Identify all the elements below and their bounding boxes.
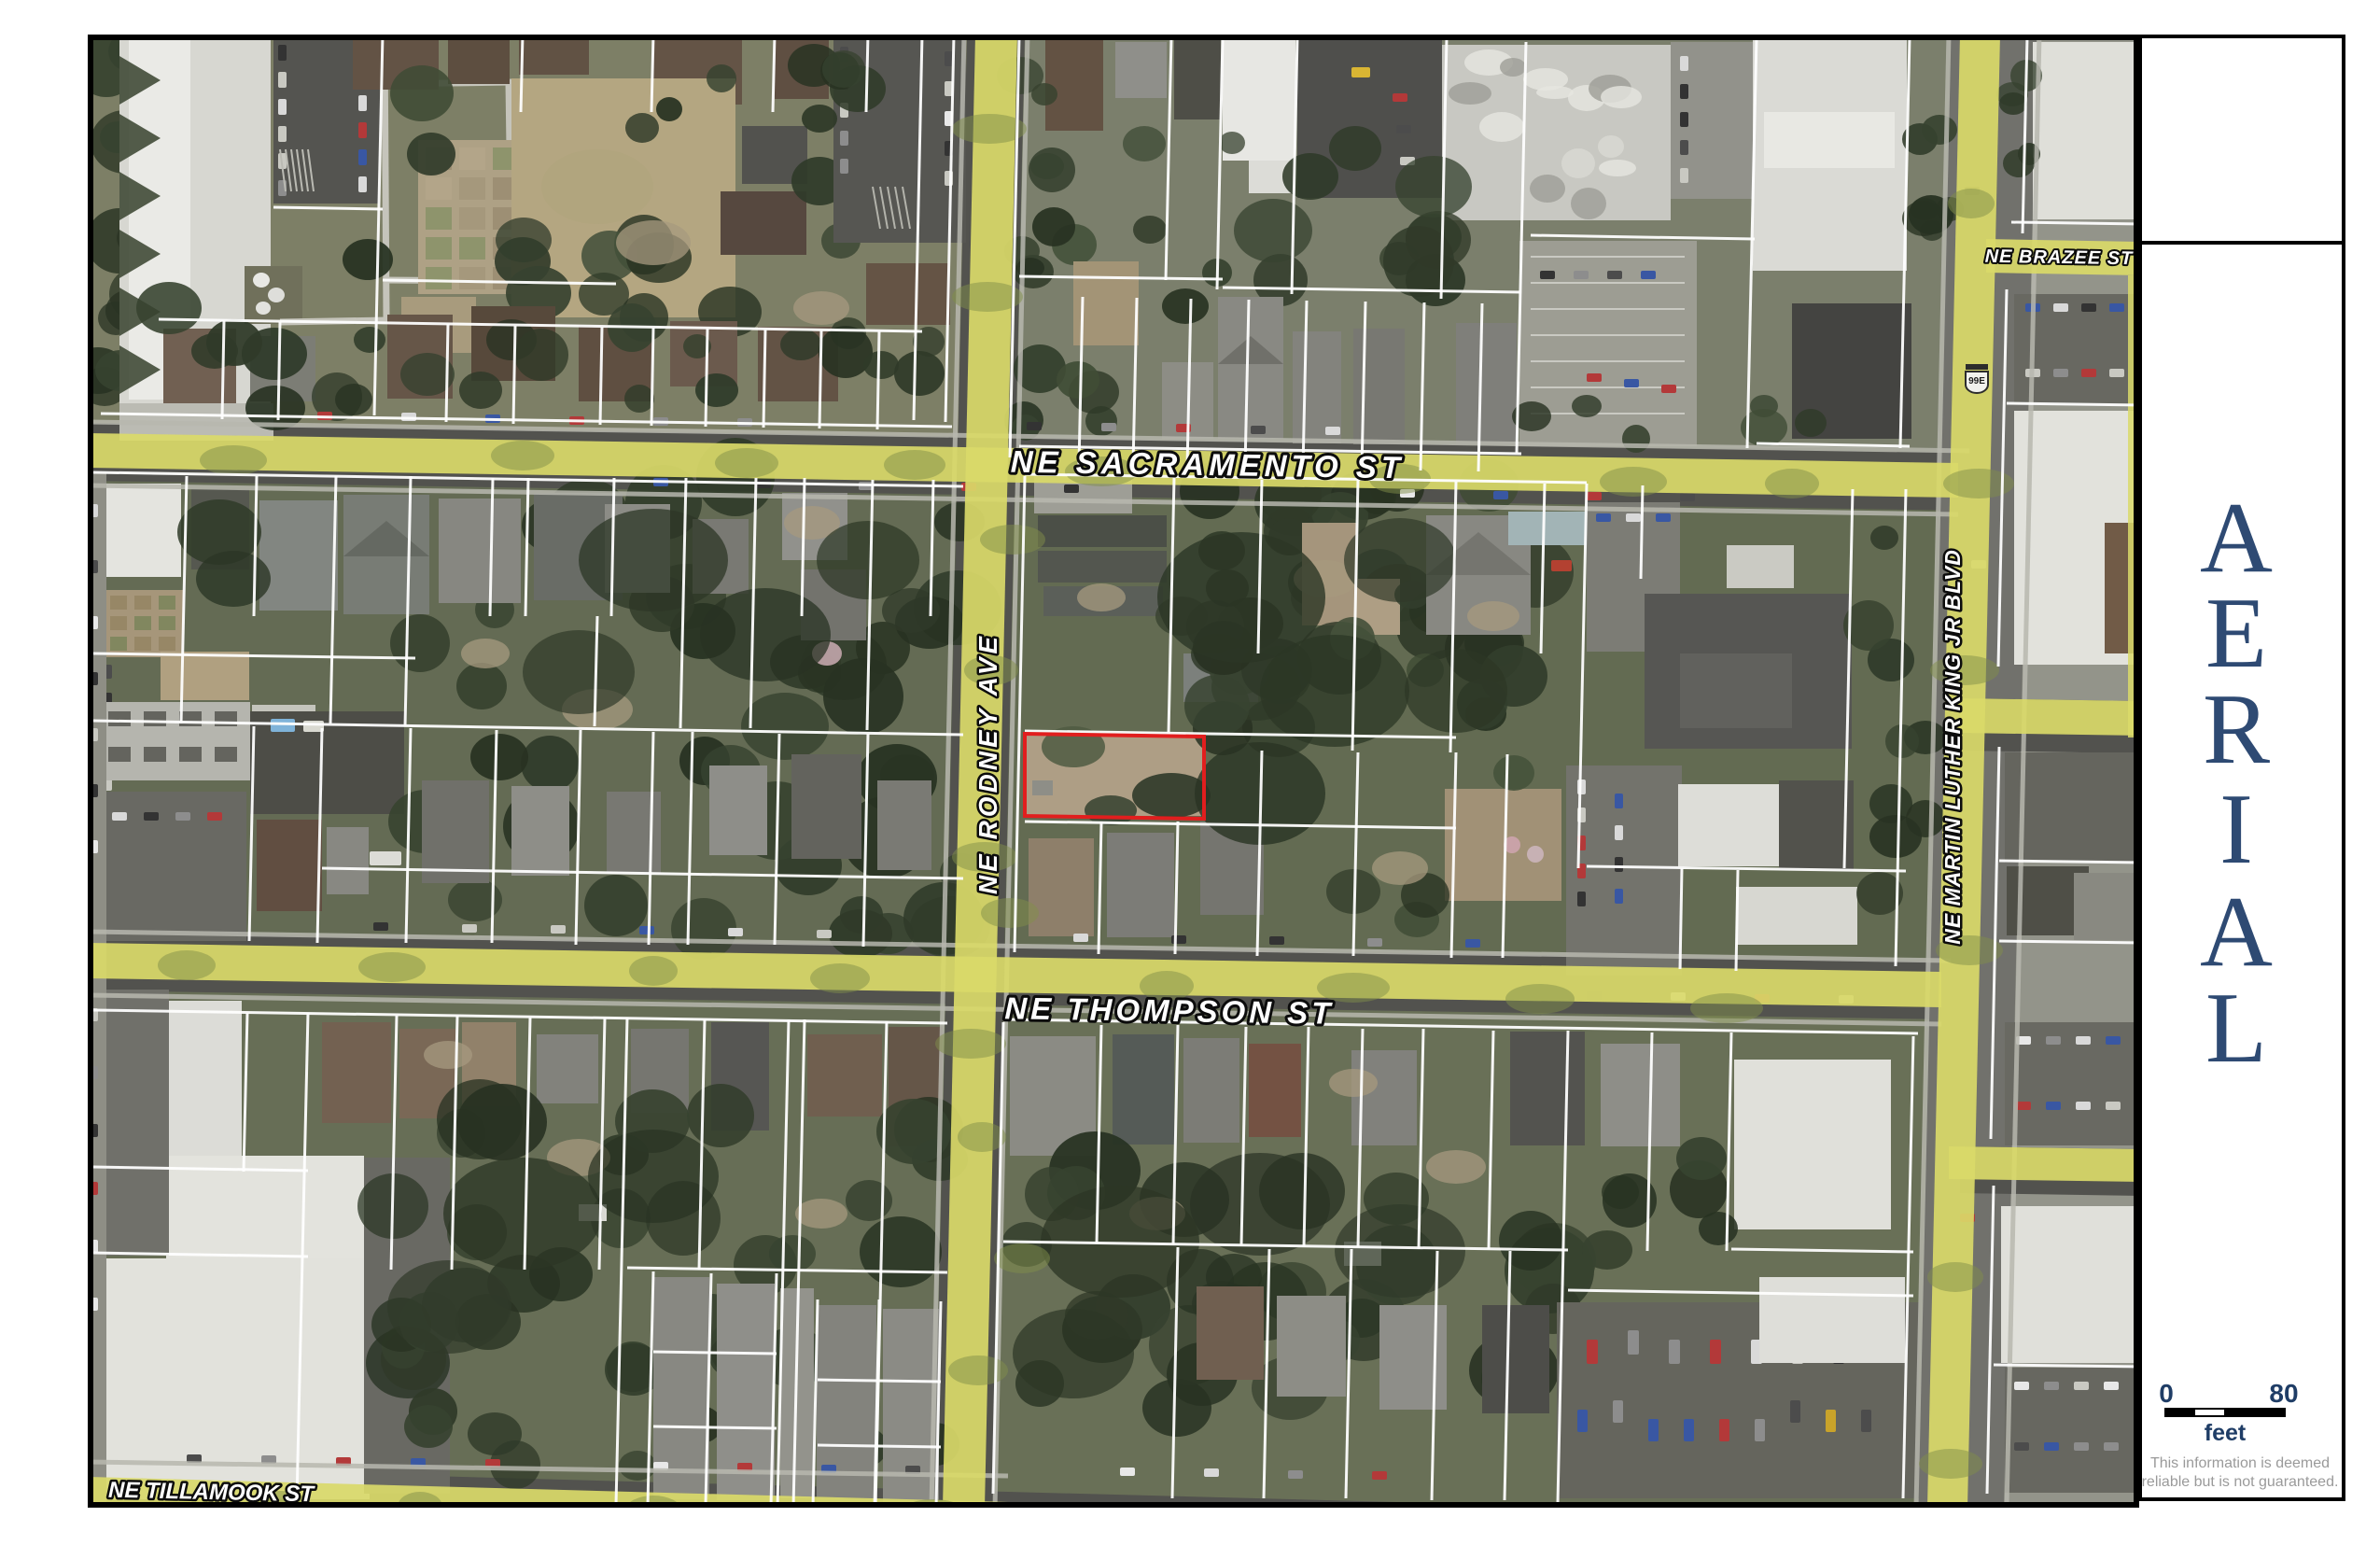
svg-text:This information is deemed: This information is deemed xyxy=(2150,1455,2330,1471)
svg-text:reliable but is not guaranteed: reliable but is not guaranteed. xyxy=(2142,1474,2339,1490)
svg-text:I: I xyxy=(2219,774,2253,885)
svg-text:E: E xyxy=(2205,578,2267,689)
svg-text:feet: feet xyxy=(2205,1420,2247,1446)
svg-text:0: 0 xyxy=(2159,1379,2174,1408)
svg-text:L: L xyxy=(2205,973,2267,1084)
svg-text:R: R xyxy=(2203,674,2270,785)
svg-text:A: A xyxy=(2200,877,2273,988)
svg-text:80: 80 xyxy=(2269,1379,2298,1408)
